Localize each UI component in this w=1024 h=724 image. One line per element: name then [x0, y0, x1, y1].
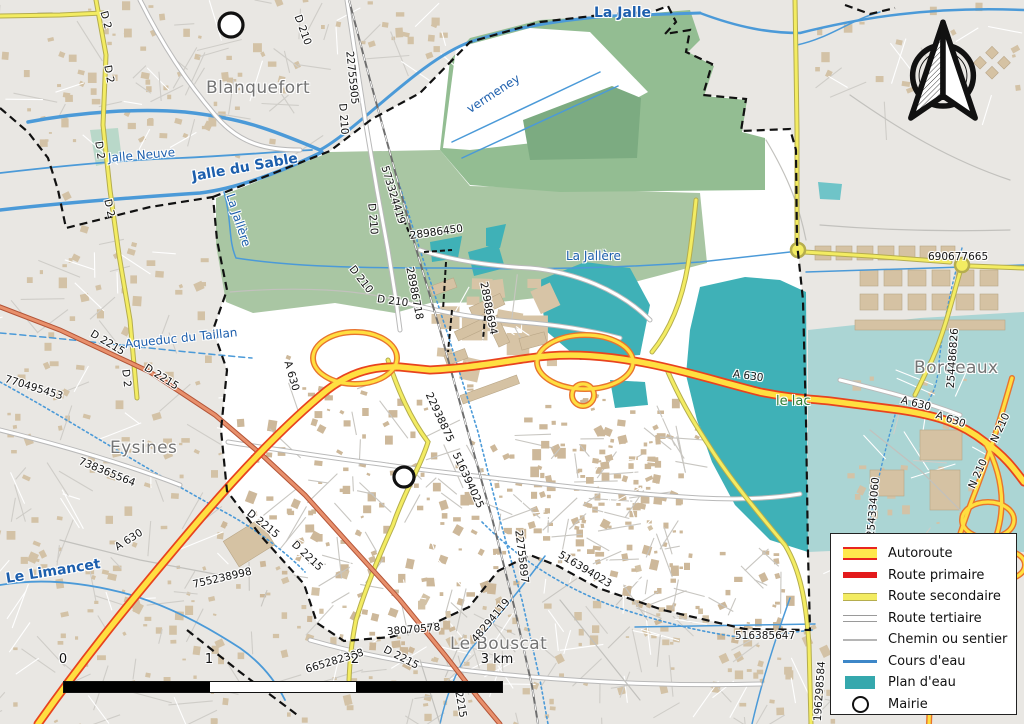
legend-item-plan-eau: Plan d'eau: [843, 672, 1008, 694]
map-label: Eysines: [110, 440, 177, 457]
map-label: 690677665: [928, 252, 988, 263]
pond-northeast: [818, 182, 842, 200]
legend-label: Route primaire: [888, 568, 984, 583]
river-line-icon: [843, 660, 877, 663]
map-label: 516385647: [735, 631, 795, 642]
autoroute-line-icon: [843, 547, 877, 560]
legend-label: Route tertiaire: [888, 611, 982, 626]
legend-label: Chemin ou sentier: [888, 632, 1007, 647]
map-canvas[interactable]: BlanquefortEysinesBordeauxLe BouscatLa J…: [0, 0, 1024, 724]
water-area-icon: [843, 676, 877, 689]
map-label: D 2: [102, 198, 116, 218]
primary-road-line-icon: [843, 572, 877, 578]
secondary-road-line-icon: [843, 593, 877, 601]
mairie-marker-bruges: [394, 467, 414, 487]
map-label: D 210: [366, 203, 379, 235]
legend-item-route-secondaire: Route secondaire: [843, 586, 1008, 608]
legend-label: Mairie: [888, 697, 928, 712]
legend-label: Autoroute: [888, 546, 953, 561]
map-legend: Autoroute Route primaire Route secondair…: [830, 533, 1017, 715]
legend-item-chemin: Chemin ou sentier: [843, 629, 1008, 651]
map-label: D 2: [102, 64, 115, 84]
legend-label: Plan d'eau: [888, 675, 956, 690]
legend-item-route-primaire: Route primaire: [843, 565, 1008, 587]
map-label: D 2: [120, 369, 132, 388]
tertiary-road-line-icon: [843, 615, 877, 622]
mairie-marker-blanquefort: [219, 13, 243, 37]
legend-item-cours-eau: Cours d'eau: [843, 651, 1008, 673]
map-label: La Jalle: [594, 6, 651, 20]
path-line-icon: [843, 639, 877, 641]
legend-label: Cours d'eau: [888, 654, 966, 669]
legend-item-autoroute: Autoroute: [843, 543, 1008, 565]
map-label: Le Bouscat: [450, 636, 547, 653]
map-label: La Jallère: [566, 250, 621, 262]
map-label: Blanquefort: [206, 80, 310, 97]
map-label: le lac: [776, 395, 810, 408]
map-label: D 2: [93, 141, 106, 160]
north-arrow-compass: [897, 16, 989, 128]
map-label: D 210: [337, 103, 350, 135]
legend-item-route-tertiaire: Route tertiaire: [843, 608, 1008, 630]
legend-item-mairie: Mairie: [843, 694, 1008, 716]
legend-label: Route secondaire: [888, 589, 1001, 604]
town-hall-circle-icon: [843, 696, 877, 713]
